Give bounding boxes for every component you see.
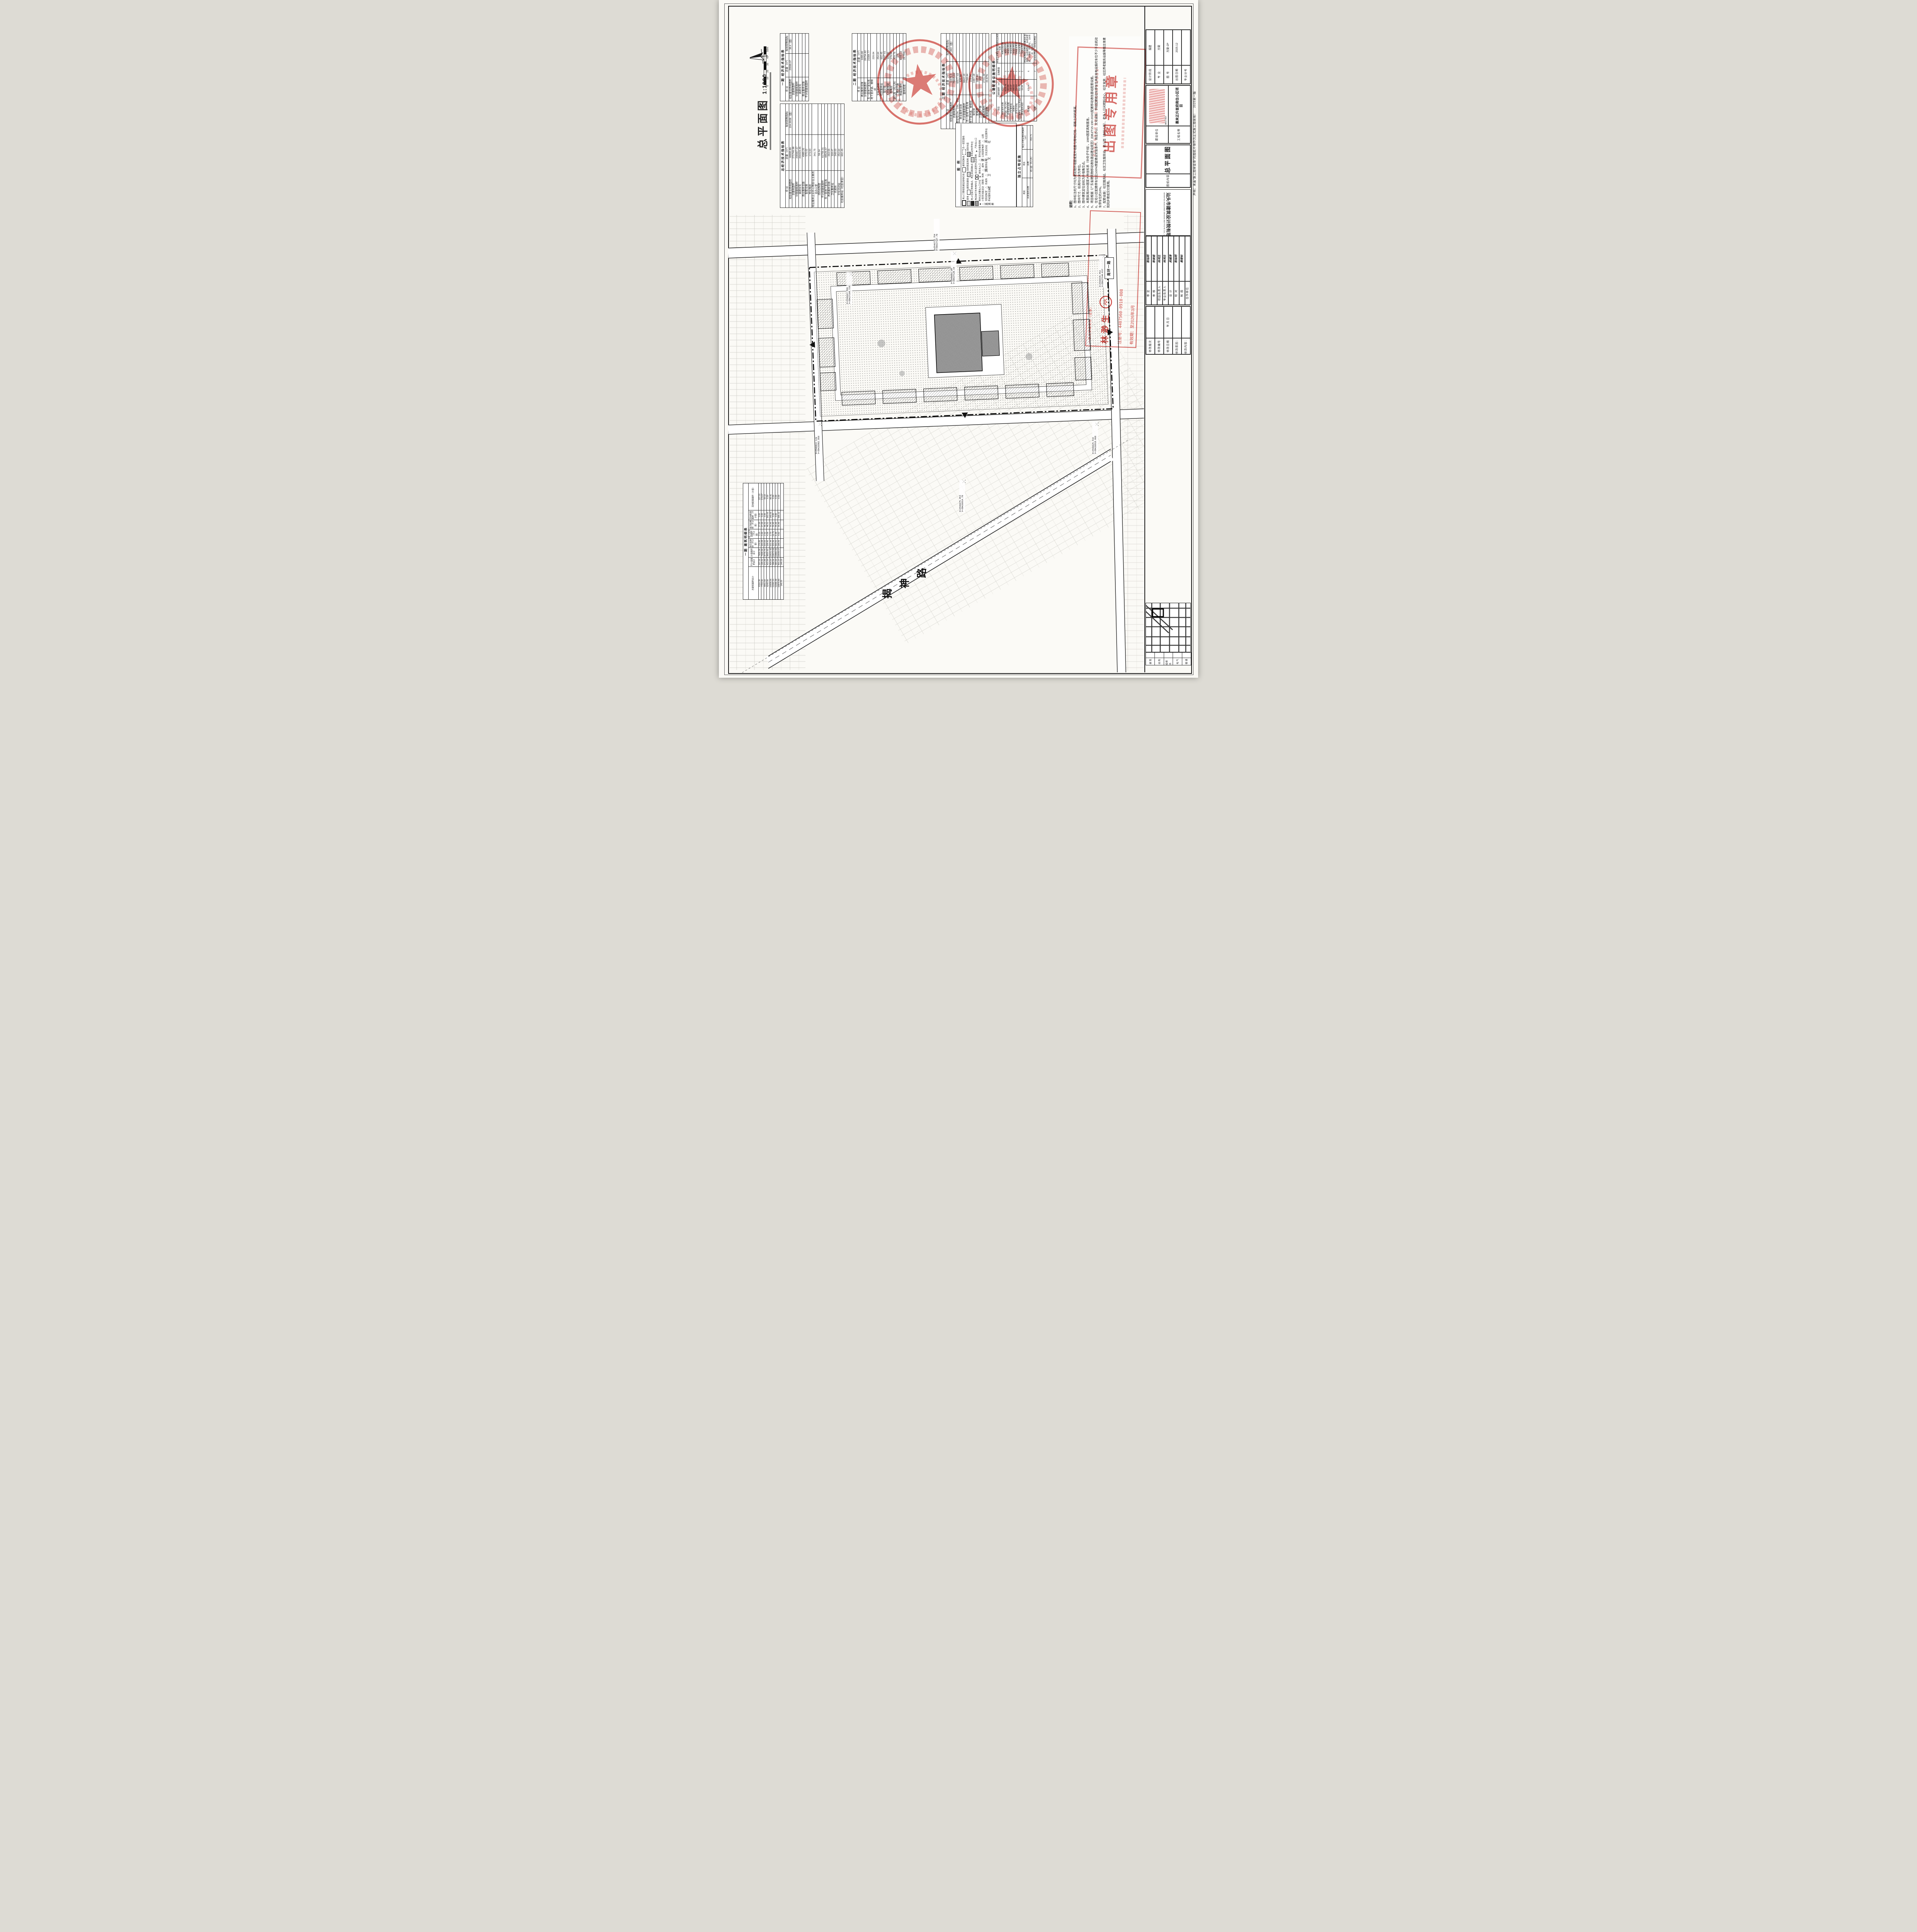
cell: 卫生服务站 xyxy=(831,170,834,207)
cell: 7909.38 xyxy=(758,548,761,557)
cell: 0.00 xyxy=(772,510,775,520)
cell: 35.45 xyxy=(778,520,781,529)
legend-label: 地块主次要出入口方位 xyxy=(979,180,982,201)
xbox-icon xyxy=(975,175,979,180)
company-seal-icon xyxy=(966,39,1056,129)
architect-name: 林渺生 xyxy=(1098,312,1111,344)
cell: 物业服务企业办公用房/业主委员会办公室 xyxy=(812,170,818,207)
column-header: 其他配套面积（不计容） xyxy=(749,510,759,520)
client-label: 建设单位 xyxy=(1146,126,1168,143)
cell: 602.45 xyxy=(841,134,844,170)
cell xyxy=(831,104,834,135)
legend-item: △消消防控制室 xyxy=(986,190,988,206)
cell: 342.01 xyxy=(775,539,778,548)
cell: 46.31 xyxy=(764,520,767,529)
table-caption: 总经济技术指标表 xyxy=(780,104,785,208)
tri:卫-icon: △卫 xyxy=(986,173,988,177)
hatch3-icon xyxy=(975,201,979,206)
cell: 204423.45 xyxy=(799,134,802,170)
cell: 2.70 xyxy=(770,529,772,538)
cell: 不计容建筑面积 xyxy=(821,170,824,207)
cell: 223.02 xyxy=(764,539,767,548)
cell: 文化活动站 xyxy=(838,170,841,207)
table-phase1-indicators: 一期 经济技术指标表项 目总量（m²）规划控制指标规划建设用地面积25599.9… xyxy=(780,33,851,101)
table-row: 11266.49383.9410882.55342.016.4835.450.0… xyxy=(775,483,778,600)
cell: 6.48 xyxy=(775,529,778,538)
cell xyxy=(781,539,783,548)
architect-reg-no: 注册号：4407560-0910-008 xyxy=(1117,214,1127,344)
legend-label: 电动自行车充电车位 xyxy=(976,181,978,200)
cell xyxy=(799,104,802,135)
legend-label: 托老所 xyxy=(986,178,988,185)
cell: 计容建筑面积 xyxy=(795,77,798,101)
cell xyxy=(805,104,809,135)
table-row: 10936.06404.6410531.42221.442.7035.45145… xyxy=(770,483,772,600)
legend-label: 消防控制室 xyxy=(986,190,988,201)
field-label: 项目负责人 xyxy=(1157,281,1163,305)
field-value: 林鸿生 xyxy=(1163,236,1168,281)
cell: 23384.77 xyxy=(867,34,870,78)
cell xyxy=(824,104,827,135)
cell: 商业服务设施 xyxy=(802,77,805,101)
column-header: 项 目 xyxy=(786,170,789,207)
cell: 28754.82 xyxy=(864,34,867,78)
column-header: 项目 xyxy=(1022,150,1027,178)
cell xyxy=(792,104,795,135)
cell: 0.00 xyxy=(775,483,778,510)
signoff-blank xyxy=(1155,653,1163,658)
cell xyxy=(828,104,831,135)
drawing-sheet: 声明：未盖“施工图审查章”的图纸不得作为正式施工图使用！ 2025第一版 010… xyxy=(719,0,1198,678)
column-header: 总建筑面积合计 xyxy=(749,566,759,599)
legend-item: △超超市 xyxy=(982,163,985,172)
data-table: 项 目总量（m²）规划控制指标规划建设用地面积69995.89104.9938（… xyxy=(785,104,844,208)
client-seal-smudge xyxy=(1149,89,1165,123)
legend-item: 非机动车停车位 xyxy=(971,141,974,162)
cell: 831.23 xyxy=(778,557,781,566)
drawing-scale: 1:1000 xyxy=(761,74,768,94)
cell: 负一层地下室车库 xyxy=(867,78,870,101)
column-header: 屋顶层面积（不计容） xyxy=(749,520,759,529)
cell: 80.41 xyxy=(770,483,772,510)
cell xyxy=(792,53,795,77)
field-value: 方案-ZP xyxy=(1164,30,1173,65)
field-value: 黄楚标 xyxy=(1179,236,1185,281)
field-label: 校 对 xyxy=(1174,281,1179,305)
legend-item: △厕公厕 xyxy=(982,134,985,143)
cell: 不计容建筑面积 xyxy=(805,77,809,101)
stamp-scribble xyxy=(1093,67,1098,156)
cell: 总建筑面积 xyxy=(792,77,795,101)
edition-note: 2025第一版 xyxy=(1193,91,1196,108)
field-label: 设 计 xyxy=(1168,281,1174,305)
field-label: 图 号 xyxy=(1164,65,1173,84)
legend-label: 文化活动站 xyxy=(986,145,988,156)
field-label: 修改编号 xyxy=(1155,338,1164,354)
cell: 3.44 xyxy=(761,529,764,538)
cell: 341.75 xyxy=(812,134,818,170)
column-header: 架空层面积（不计容） xyxy=(749,539,759,548)
cell: 负一层地下室车库 xyxy=(824,170,827,207)
table-row: 不计容建筑面积61759.31 xyxy=(821,104,824,208)
table-row: 商业服务设施1055.80 xyxy=(861,34,864,101)
field-value: 年 月 日 xyxy=(1164,306,1173,338)
cell: 规划建设用地面积 xyxy=(789,77,792,101)
signoff-row: 电 气 xyxy=(1173,653,1182,665)
cell: 10870.80 xyxy=(778,566,781,599)
signoff-label: 暖 通 xyxy=(1182,658,1191,665)
coord-y: Y=39426902.858 xyxy=(818,422,820,454)
cell: 207.00 xyxy=(758,557,761,566)
cell: 263.55 xyxy=(828,134,831,170)
field-label: 制 图 xyxy=(1179,281,1185,305)
field-value: 林鸿生 xyxy=(1157,236,1163,281)
field-value: 方案 xyxy=(1155,30,1164,65)
project-name: 惠来正升首府商住小区项目 xyxy=(1168,85,1191,126)
cell: 25599.97 xyxy=(789,53,792,77)
drawing-title: 总平面图1:1000 xyxy=(754,110,771,150)
cell: 幼儿园（托儿所） xyxy=(1030,150,1033,178)
cell: 209987.67 xyxy=(795,134,798,170)
cell xyxy=(781,520,783,529)
cell: 4.62 xyxy=(778,529,781,538)
cell: 社区服务站（社区食堂） xyxy=(841,170,844,207)
tri:电-icon: △电 xyxy=(982,158,985,162)
legend-item: △健室外综合健身用地 xyxy=(979,140,982,162)
signoff-row: 暖 通 xyxy=(1182,653,1191,665)
cell: 38.4（亩） xyxy=(789,34,792,54)
signoff-label: 结 构 xyxy=(1155,658,1163,665)
field-value: 2025.12 xyxy=(1173,30,1182,65)
cell xyxy=(781,510,783,520)
cell: 388.56 xyxy=(772,557,775,566)
road-label-char: 揭 xyxy=(880,588,894,599)
tri:超-icon: △超 xyxy=(982,168,985,172)
titleblock-content: 图纸内容 总平面图 xyxy=(1146,145,1190,188)
cell: 0.00 xyxy=(778,483,781,510)
coordinate-label: X=2546712.754Y=39427127.79 xyxy=(934,219,940,251)
rect-thin-icon xyxy=(967,190,970,195)
rect-icon xyxy=(962,167,966,172)
tri:养-icon: △养 xyxy=(989,202,992,206)
cell: 69995.89 xyxy=(789,134,792,170)
field-value xyxy=(1182,306,1190,338)
tri:老-icon: △老 xyxy=(986,185,988,189)
titleblock-revision: 修改版次修改编号修改日期年 月 日修改原因：修改内容： xyxy=(1146,307,1190,355)
scale-tick: 40 xyxy=(766,52,769,59)
table-row: 负一层地下室车库48526.97 xyxy=(824,104,827,208)
coordinate-label: X=2546661.29Y=39427128.19 xyxy=(951,253,957,284)
cell: 271746.98 xyxy=(792,134,795,170)
legend-item: 绿地 xyxy=(967,196,970,206)
legend-item: ➤单体出入口 xyxy=(979,163,982,179)
field-value xyxy=(1182,30,1190,65)
table-row: 养老服务设施263.55 xyxy=(828,104,831,208)
legend-item: △老托老所 xyxy=(986,178,988,189)
tri:消-icon: △消 xyxy=(986,202,988,206)
cell: 383.94 xyxy=(775,557,778,566)
coord-y: Y=39426914.70 xyxy=(962,480,964,512)
cell: 46.31 xyxy=(767,520,770,529)
legend-label: 汽车出入口 xyxy=(976,138,978,148)
titleblock-people: 审 定陈灿明审 核陈彼庭项目负责人林鸿生专业负责人林鸿生设 计吴越涛校 对陈灿明… xyxy=(1146,236,1190,305)
cell: 托老所 xyxy=(834,170,838,207)
signoff-blank xyxy=(1182,653,1191,658)
field-value: 吴越涛 xyxy=(1168,236,1174,281)
cell: 4989.20 xyxy=(802,134,805,170)
cell: 19.75 xyxy=(772,529,775,538)
column-header: 规划控制指标 xyxy=(786,104,789,135)
cell: 4.36 xyxy=(767,529,770,538)
table-phase1-buildings: 一期 建筑明细表总建筑面积合计不计容面积合计计容面积合计架空层面积（不计容）地下… xyxy=(743,483,795,600)
arrow-solid-icon: ▲ xyxy=(979,202,982,206)
table-row: 卫生服务站118.47 xyxy=(831,104,834,208)
legend-label: 地上三期规划建设用地红线 xyxy=(963,173,965,199)
field-label: 合作单位 xyxy=(1185,281,1190,305)
cell: 10882.55 xyxy=(775,548,778,557)
coord-y: Y=39427127.79 xyxy=(936,219,938,251)
legend-label: 幼儿园室外活动场地 xyxy=(976,154,978,173)
legend-item: 消防车道 xyxy=(967,143,970,157)
tri:文-icon: △文 xyxy=(986,156,988,160)
field-label: 设计阶段 xyxy=(1146,65,1155,84)
cell xyxy=(795,53,798,77)
coord-y: Y=39427104.729 xyxy=(849,272,851,304)
cell xyxy=(802,104,805,135)
cell: 高层住宅 xyxy=(799,77,802,101)
cell xyxy=(805,34,809,54)
cell: 48526.97 xyxy=(824,134,827,170)
column-header: 总量（m²） xyxy=(786,134,789,170)
location-key-map xyxy=(1146,603,1191,652)
cell: 176.85 xyxy=(758,539,761,548)
cell xyxy=(781,548,783,557)
field-value: 报建 xyxy=(1146,30,1155,65)
column-header: 项 目 xyxy=(858,78,861,101)
cell: 7508.04 xyxy=(761,548,764,557)
cell: 575.02 xyxy=(805,134,809,170)
table-row: 商业服务设施 xyxy=(802,34,805,101)
cell: 118.47 xyxy=(831,134,834,170)
table-caption: 二期 经济技术指标表 xyxy=(852,33,857,101)
table-caption: 一期 经济技术指标表 xyxy=(780,33,785,101)
cell: 商业服务设施 xyxy=(1027,178,1030,207)
sheet-content-label: 图纸内容 xyxy=(1146,174,1190,187)
architect-seal-icon xyxy=(1099,295,1112,309)
column-header: 地下室井道面积（不计容） xyxy=(749,529,759,538)
table-row: 总建筑面积271746.98 xyxy=(792,104,795,208)
legend-title: 图 例 xyxy=(957,124,961,206)
cell: 配套设施 xyxy=(805,170,809,207)
field-value: 陈灿明 xyxy=(1146,236,1151,281)
scale-tick: 30 xyxy=(766,59,769,66)
cell: 8116.38 xyxy=(758,566,761,599)
cell: 10936.06 xyxy=(770,566,772,599)
road-label-char: 神 xyxy=(897,578,911,588)
cell: 物业电房 xyxy=(809,170,812,207)
legend-item: 电动自行车充电车位 xyxy=(975,181,979,206)
legend-item: △文文化活动站 xyxy=(986,145,988,160)
legend-label: 超市 xyxy=(982,163,985,167)
field-value xyxy=(1185,236,1190,281)
cell: 196.05 xyxy=(778,539,781,548)
cell xyxy=(838,104,841,135)
cell: 404.64 xyxy=(770,557,772,566)
column-header: 规划控制指标 xyxy=(786,34,789,54)
cell: 348.03 xyxy=(834,134,838,170)
titleblock-company: 汕头市建筑设计院有限公司 SHANTOU BUILDING DESIGN INS… xyxy=(1146,189,1191,236)
road-label-char: 路 xyxy=(914,568,928,578)
cell: 227.02 xyxy=(758,483,761,510)
table-row: 149.25149.25 xyxy=(781,483,783,600)
cell xyxy=(799,34,802,54)
cell: 595.11 xyxy=(778,510,781,520)
table-caption: 独立占地设施 xyxy=(1016,125,1022,207)
legend-item: △社社区服务站 xyxy=(986,128,988,144)
solid-icon xyxy=(971,201,974,206)
cell: 0.00 xyxy=(761,510,764,520)
cell: 0.00 xyxy=(775,510,778,520)
legend-item: 建筑轮廓线 xyxy=(967,178,970,195)
cell: 0.00 xyxy=(767,483,770,510)
lane-icon xyxy=(967,152,970,157)
table-row: 高层住宅 xyxy=(799,34,802,101)
tri:厕-icon: △厕 xyxy=(982,139,985,143)
legend-item: ▲地块主次要出入口方位 xyxy=(979,180,982,206)
coordinate-label: X=2546625.532Y=39426918.068 xyxy=(1092,423,1098,454)
issue-stamp-text: 出图专用章 xyxy=(1099,71,1120,153)
field-label: 修改原因： xyxy=(1173,338,1182,354)
field-label: 出图日期 xyxy=(1173,65,1182,84)
cell xyxy=(802,53,805,77)
cell: 8779.75 xyxy=(764,548,767,557)
table-row: 10870.80831.2310039.57196.054.6235.45595… xyxy=(778,483,781,600)
table-row: 商业服务设施商铺 xyxy=(1027,126,1030,207)
margin-disclaimer: 声明：未盖“施工图审查章”的图纸不得作为正式施工图使用！ 2025第一版 xyxy=(1192,33,1198,196)
cell xyxy=(818,104,821,135)
field-value xyxy=(1155,306,1164,338)
stamp-scribble xyxy=(1121,78,1126,148)
cell: 165.08 xyxy=(761,539,764,548)
column-header: 总量（m²） xyxy=(858,34,861,78)
tri:社-icon: △社 xyxy=(986,140,988,144)
signoff-label: 电 气 xyxy=(1173,658,1182,665)
column-header: 其他配套面积（计容） xyxy=(749,483,759,510)
page-title: 总平面图 xyxy=(757,98,769,149)
cell: 计容建筑面积 xyxy=(795,170,798,207)
cell: 93.52 xyxy=(764,483,767,510)
table-row: 规划建设用地面积69995.89104.9938（亩） xyxy=(789,104,792,208)
table-row: 9051.60271.858779.75223.022.5246.310.009… xyxy=(764,483,767,600)
cell: 104.9938（亩） xyxy=(789,104,792,135)
cell xyxy=(821,104,824,135)
cell: 总建筑面积 xyxy=(792,170,795,207)
table-row: 计容建筑面积209987.67 xyxy=(795,104,798,208)
legend-label: 地上垃圾分类收集点、再生资源回收点 xyxy=(972,163,974,200)
scale-tick: 20 xyxy=(766,66,769,73)
cell: 0.00 xyxy=(772,483,775,510)
cell: 商业服务设施 xyxy=(802,170,805,207)
cell xyxy=(841,104,844,135)
data-table: 类别项目独立占地设施用地面积（m²）商业服务设施商铺幼儿园（托儿所）652.71 xyxy=(1022,125,1033,207)
cell: 173.93 xyxy=(809,134,812,170)
field-label: 审 定 xyxy=(1146,281,1151,305)
issue-stamp: 出图专用章 xyxy=(1073,49,1139,176)
cell: 1055.80 xyxy=(861,34,864,78)
architect-stamp: 一级注册建筑师（签章） 林渺生 注册号：4407560-0910-008 有效期… xyxy=(1085,216,1132,346)
legend-item: 幼儿园室外活动场地 xyxy=(975,154,979,179)
legend-item: △养养老服务设施 xyxy=(989,188,992,206)
cell xyxy=(802,34,805,54)
field-value: 陈彼庭 xyxy=(1151,236,1157,281)
signoff-blank xyxy=(1173,653,1182,658)
table-caption: 一期 建筑明细表 xyxy=(743,483,748,600)
legend-label: 消防登高场地 xyxy=(967,158,970,171)
column-header: 项 目 xyxy=(786,77,789,101)
cell: 9051.60 xyxy=(764,566,767,599)
table-row: 幼儿园（托儿所）652.71 xyxy=(1030,126,1033,207)
titleblock-project: 建设单位 A017367 工程名称 惠来正升首府商住小区项目 xyxy=(1146,86,1190,144)
table-row: 社区服务站（社区食堂）602.45 xyxy=(841,104,844,208)
cell: 规划建设用地面积 xyxy=(789,170,792,207)
coordinate-label: X=2546647.586Y=39427104.729 xyxy=(846,273,852,304)
table-standalone-facilities: 独立占地设施类别项目独立占地设施用地面积（m²）商业服务设施商铺幼儿园（托儿所）… xyxy=(1016,125,1055,207)
signoff-strip: 建 筑结 构给排水电 气暖 通 xyxy=(1146,653,1191,665)
cell: 养老服务设施 xyxy=(828,170,831,207)
coordinate-label: X=2546822.129Y=39426902.858 xyxy=(815,423,821,454)
cell xyxy=(1030,178,1033,207)
cell: 35.45 xyxy=(770,520,772,529)
legend-label: 非机动车停车位 xyxy=(972,141,974,156)
rect-dash-icon xyxy=(962,150,966,155)
legend-item: 消防登高场地 xyxy=(967,158,970,177)
legend: 图 例 地上三期规划建设用地红线建筑控制线负一层范围线绿地建筑轮廓线消防登高场地… xyxy=(955,125,1014,207)
table-row: 计容建筑面积28754.82 xyxy=(864,34,867,101)
cell: 8820.92 xyxy=(767,548,770,557)
field-value xyxy=(1146,306,1155,338)
signoff-blank xyxy=(1146,653,1154,658)
architect-stamp-title: 一级注册建筑师（签章） xyxy=(1087,213,1096,343)
project-name-label: 工程名称 xyxy=(1168,126,1191,143)
table-row: 文化活动站254.64 xyxy=(838,104,841,208)
table-row: 物业电房173.93 xyxy=(809,104,812,208)
cell: 59.34 xyxy=(818,134,821,170)
legend-item: 地上垃圾分类收集点、再生资源回收点 xyxy=(971,163,974,206)
site-block xyxy=(806,252,1117,425)
tri:运-icon: △运 xyxy=(982,202,985,206)
cell: 263.55 xyxy=(767,510,770,520)
arrow-sm-icon: ➤ xyxy=(979,175,982,179)
legend-label: 消防车道 xyxy=(967,143,970,151)
coord-y: Y=39427128.19 xyxy=(953,252,955,284)
signoff-row: 建 筑 xyxy=(1146,653,1155,665)
cell: 3.15 xyxy=(758,529,761,538)
cell: 10039.57 xyxy=(778,548,781,557)
field-label: 专业分号 xyxy=(1182,65,1190,84)
table-row: 总建筑面积 xyxy=(792,34,795,101)
cell: 高层住宅 xyxy=(799,170,802,207)
cell: 149.25 xyxy=(781,566,783,599)
cell: 10531.42 xyxy=(770,548,772,557)
table-row: 负一层地下室车库23384.77 xyxy=(867,34,870,101)
cell: 422.64 xyxy=(767,557,770,566)
legend-label: 公用变配电房 xyxy=(982,144,985,157)
table-row: 消防控制室59.34 xyxy=(818,104,821,208)
cell xyxy=(795,34,798,54)
table-row: 7703.56195.527508.04165.083.4427.000.001… xyxy=(761,483,764,600)
cell xyxy=(781,483,783,510)
signoff-label: 给排水 xyxy=(1164,658,1173,665)
